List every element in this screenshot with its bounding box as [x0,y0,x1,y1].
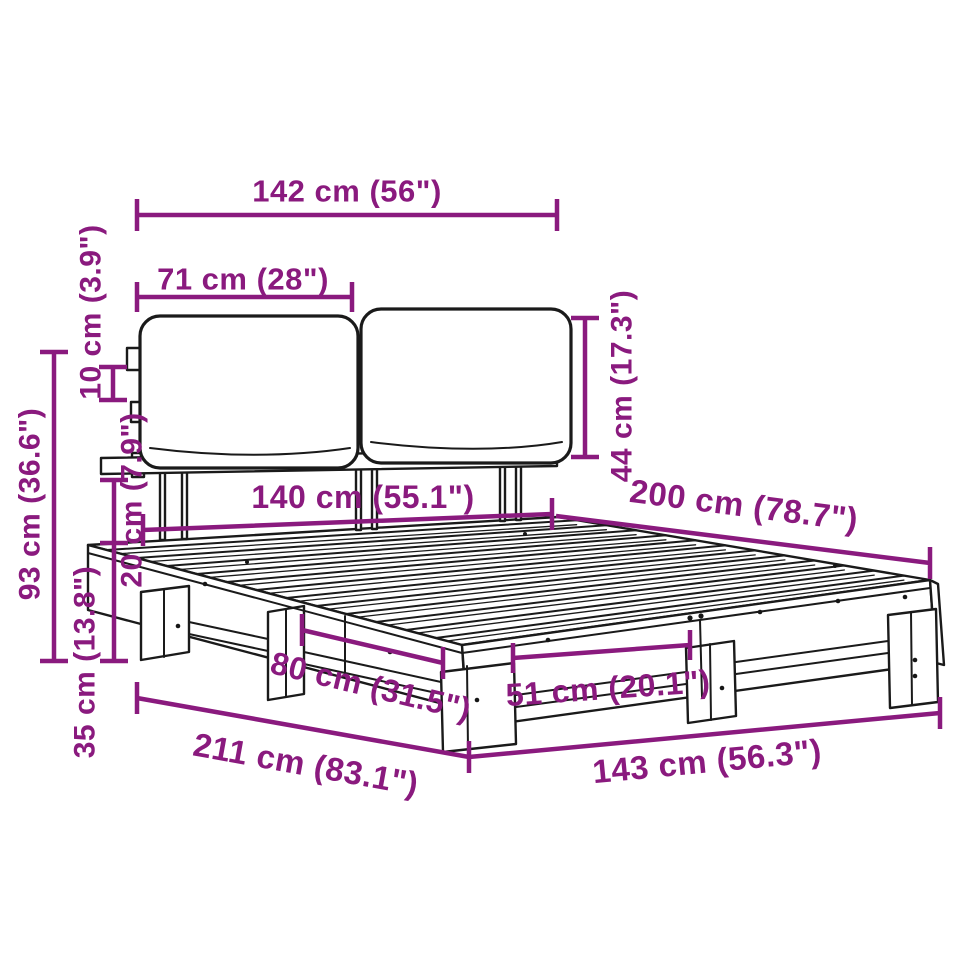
dim-label-bracket-gap: 10 cm (3.9") [75,224,108,399]
leg-foot-right [888,609,938,708]
cushion-left [140,316,358,468]
dim-label-mattress-width: 140 cm (55.1") [251,479,474,515]
dimension-bracket-gap: 10 cm (3.9") [75,224,128,400]
cushion-right [361,309,571,463]
dimension-headboard-height: 93 cm (36.6") [14,352,69,661]
dim-label-overall-length: 211 cm (83.1") [190,726,421,803]
dim-label-cushion-height: 44 cm (17.3") [606,290,639,483]
dim-label-leg-height: 35 cm (13.8") [69,566,102,759]
dimension-headboard-width: 142 cm (56") [137,174,557,232]
dimension-cushion-width: 71 cm (28") [137,262,352,313]
dim-label-frame-height: 20 cm (7.9") [116,412,149,587]
diagram-canvas: 142 cm (56") 71 cm (28") 10 cm (3.9") 93… [0,0,960,960]
bed-dimension-diagram: 142 cm (56") 71 cm (28") 10 cm (3.9") 93… [0,0,960,960]
dim-label-headboard-height: 93 cm (36.6") [14,408,47,601]
dim-label-cushion-width: 71 cm (28") [157,262,329,297]
dimension-cushion-height: 44 cm (17.3") [571,290,639,483]
dim-label-headboard-width: 142 cm (56") [252,174,442,209]
